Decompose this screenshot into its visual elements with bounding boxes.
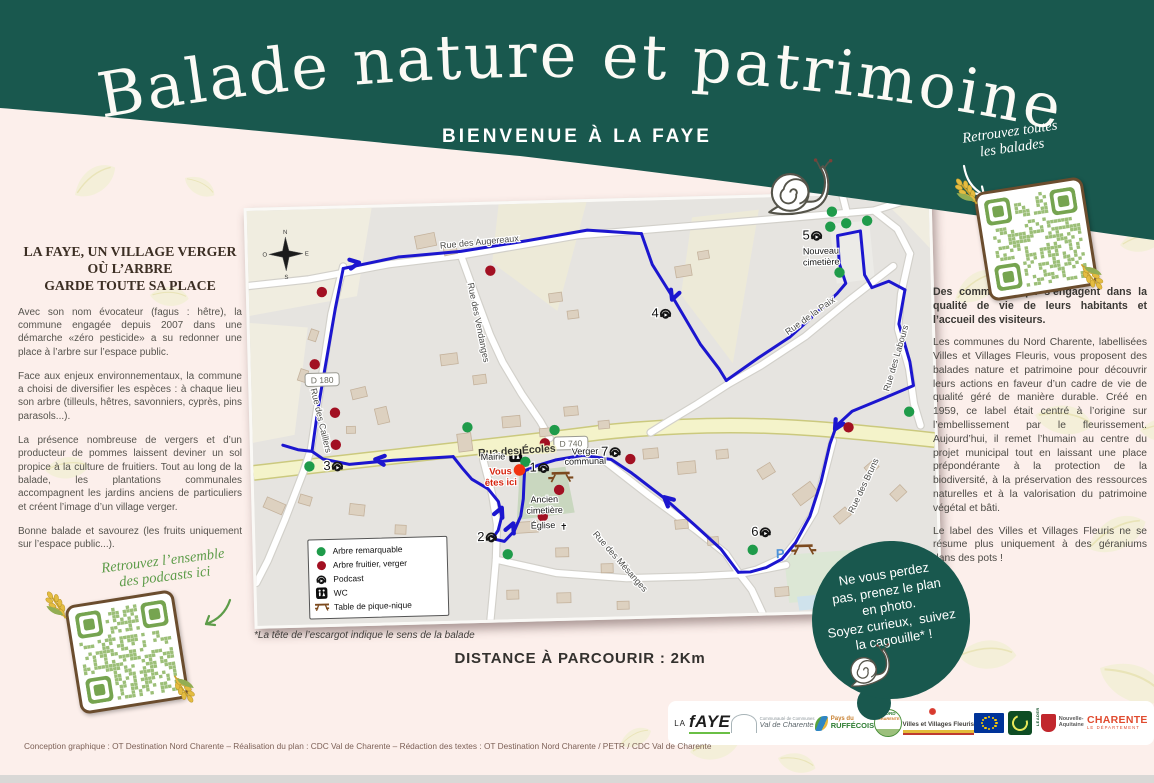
place-label: cimetière	[526, 505, 563, 516]
building	[601, 564, 613, 573]
eu-logo-icon	[974, 713, 1004, 733]
wc-icon	[315, 586, 329, 599]
distance-label: DISTANCE À PARCOURIR : 2Km	[330, 650, 830, 667]
svg-text:E: E	[305, 251, 309, 257]
logo-text-line: RUFFÉCOIS	[831, 722, 874, 730]
left-heading-line: OÙ L’ARBRE	[18, 260, 242, 277]
you-are-here-label: Vous	[489, 466, 512, 478]
ruffecois-logo-icon	[815, 716, 828, 731]
building	[507, 590, 519, 599]
svg-text:S: S	[284, 275, 288, 281]
logo-charente: CHARENTELE DÉPARTEMENT	[1084, 705, 1148, 741]
qr-code-podcasts	[64, 589, 190, 715]
credits-line: Conception graphique : OT Destination No…	[24, 741, 711, 751]
building	[346, 426, 355, 433]
building	[556, 548, 569, 557]
legend-label: Podcast	[333, 573, 364, 584]
partner-logos-bar: LAfAYECommunauté de CommunesVal de Chare…	[668, 701, 1154, 745]
building	[557, 593, 571, 603]
logo-leader: LEADER	[1008, 705, 1041, 741]
leader-logo-icon	[1008, 711, 1032, 735]
logo-text-line: Aquitaine	[1059, 723, 1084, 729]
building	[677, 461, 696, 475]
picnic-icon	[315, 600, 329, 613]
legend-label: Table de pique-nique	[334, 600, 412, 612]
poster-root: Balade nature et patrimoine BIENVENUE À …	[0, 0, 1154, 783]
fleuris-logo-icon	[929, 708, 936, 715]
podcast-point-3: 3	[323, 458, 331, 473]
podcast-point-7: 7	[601, 444, 609, 459]
podcast-point-4: 4	[651, 305, 659, 320]
building	[775, 587, 790, 597]
building	[567, 310, 579, 319]
building	[457, 433, 473, 453]
place-label: communal	[564, 456, 606, 467]
building	[598, 420, 610, 429]
logo-text-line: Val de Charente	[760, 721, 815, 729]
building	[617, 601, 629, 609]
logo-fleuris: Villes et Villages Fleuris	[903, 705, 975, 741]
logo-valcharente: Communauté de CommunesVal de Charente	[731, 705, 815, 741]
red-icon	[314, 558, 328, 571]
podcast-point-1: 1	[529, 459, 537, 474]
green-icon	[313, 544, 327, 557]
bottom-edge	[0, 775, 1154, 783]
left-heading: LA FAYE, UN VILLAGE VERGEROÙ L’ARBREGARD…	[18, 243, 242, 295]
qr-code-balades	[973, 176, 1099, 302]
building	[473, 374, 487, 385]
podcast-point-2: 2	[477, 529, 485, 544]
logo-naquitaine: Nouvelle-Aquitaine	[1041, 705, 1084, 741]
left-text-panel: LA FAYE, UN VILLAGE VERGEROÙ L’ARBREGARD…	[18, 243, 242, 551]
legend-label: Arbre remarquable	[332, 544, 402, 556]
logo-text-line: LEADER	[1035, 720, 1039, 726]
right-body: Les communes du Nord Charente, labellisé…	[933, 336, 1147, 515]
building	[675, 264, 693, 277]
place-label: cimetière	[803, 256, 840, 267]
place-label: Église	[531, 520, 556, 531]
naquitaine-logo-icon	[1041, 714, 1056, 732]
building	[440, 353, 458, 366]
logo-text-line: Villes et Villages Fleuris	[903, 713, 975, 734]
building	[643, 448, 659, 459]
paragraph: La présence nombreuse de vergers et d’un…	[18, 434, 242, 514]
podcast-icon	[314, 572, 328, 585]
podcast-note: Retrouvez l’ensembledes podcasts ici	[83, 544, 246, 595]
building	[716, 449, 729, 459]
curved-arrow-icon	[196, 598, 236, 632]
logo-eu	[974, 705, 1007, 741]
parking-icon: P	[776, 546, 785, 561]
place-label: Mairie	[481, 451, 506, 462]
building	[675, 519, 689, 529]
building	[502, 415, 521, 428]
legend-item: Table de pique-nique	[315, 597, 443, 614]
advice-badge: Ne vous perdezpas, prenez le planen phot…	[801, 530, 982, 711]
left-heading-line: GARDE TOUTE SA PLACE	[18, 277, 242, 294]
right-outro: Le label des Villes et Villages Fleuris …	[933, 525, 1147, 566]
legend-label: WC	[334, 587, 348, 597]
paragraph: Avec son nom évocateur (fagus : hêtre), …	[18, 306, 242, 359]
podcast-point-6: 6	[751, 524, 759, 539]
place-label: Ancien	[530, 494, 558, 505]
building	[349, 503, 365, 516]
road-badge: D 180	[311, 375, 334, 386]
left-paragraphs: Avec son nom évocateur (fagus : hêtre), …	[18, 306, 242, 552]
building	[395, 525, 406, 534]
legend-label: Arbre fruitier, verger	[333, 558, 407, 570]
logo-text-line: LE DÉPARTEMENT	[1087, 726, 1148, 731]
svg-text:O: O	[262, 252, 267, 258]
building	[697, 250, 709, 260]
snail-icon	[842, 640, 907, 695]
you-are-here-label: êtes ici	[485, 477, 517, 489]
map-legend: Arbre remarquableArbre fruitier, vergerP…	[307, 536, 449, 620]
map-footnote: *La tête de l’escargot indique le sens d…	[254, 630, 475, 641]
building	[564, 406, 579, 416]
right-text-panel: Des communes qui s’engagent dans la qual…	[933, 286, 1147, 566]
snail-illustration	[764, 157, 848, 222]
building	[549, 292, 563, 303]
logo-lafaye: LAfAYE	[674, 705, 730, 741]
valcharente-logo-icon	[731, 714, 757, 733]
church-cross-icon: ✝	[560, 522, 568, 532]
paragraph: Face aux enjeux environnementaux, la com…	[18, 370, 242, 423]
